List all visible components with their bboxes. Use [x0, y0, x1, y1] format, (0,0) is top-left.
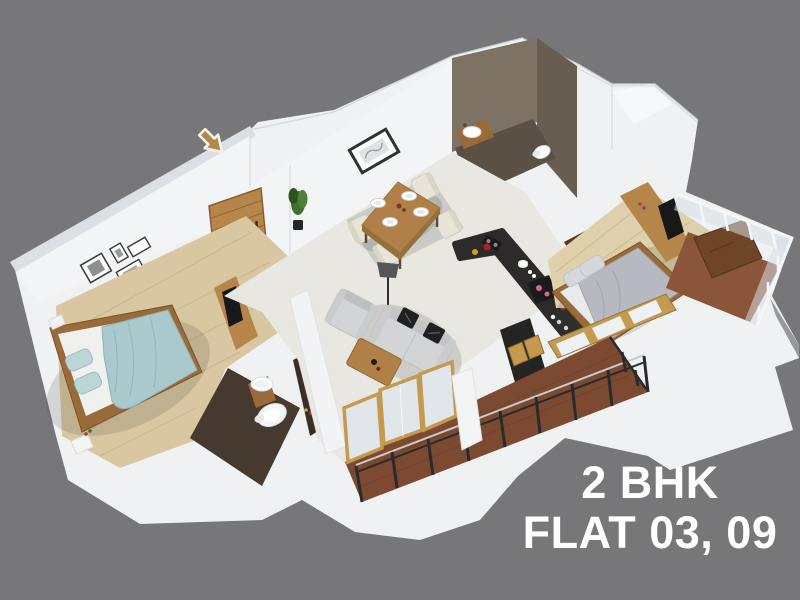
burner-icon [536, 285, 542, 291]
pot-icon [484, 244, 491, 251]
washbasin-top [463, 127, 481, 138]
flower-icon [84, 432, 88, 436]
jar-icon [472, 249, 478, 255]
door-panel-1 [344, 394, 382, 462]
decor-books [638, 202, 641, 205]
caption-line-1: 2 BHK [500, 458, 800, 508]
caption: 2 BHK FLAT 03, 09 [500, 458, 800, 558]
centerpiece-icon [397, 204, 402, 209]
door-panel-3 [420, 362, 456, 430]
faucet-icon [463, 123, 467, 127]
caption-line-2: FLAT 03, 09 [500, 508, 800, 558]
